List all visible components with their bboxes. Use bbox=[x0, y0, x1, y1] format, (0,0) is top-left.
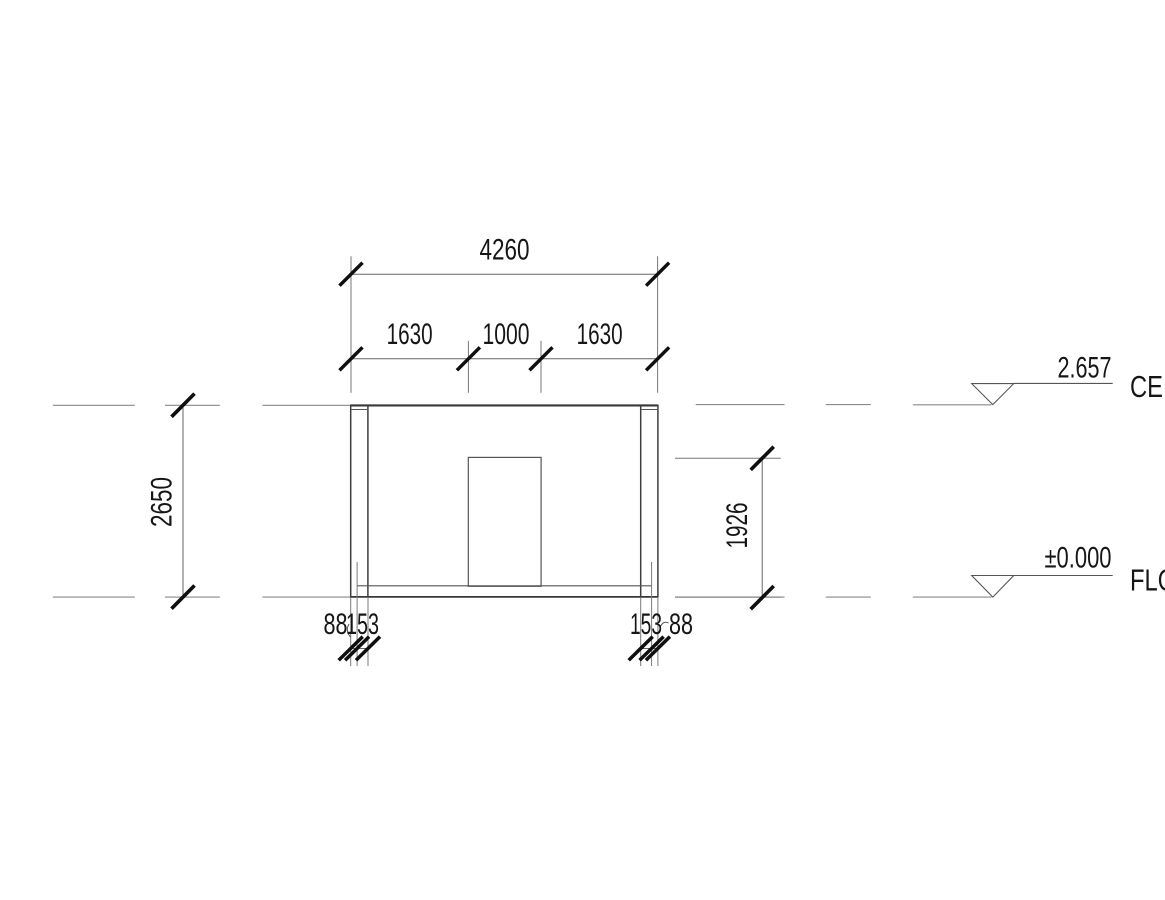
svg-text:1926: 1926 bbox=[721, 503, 754, 549]
svg-text:1000: 1000 bbox=[483, 318, 530, 351]
svg-text:88: 88 bbox=[324, 608, 348, 641]
svg-text:±0.000: ±0.000 bbox=[1045, 541, 1112, 574]
svg-text:2650: 2650 bbox=[146, 477, 179, 527]
svg-text:FLOOR: FLOOR bbox=[1130, 563, 1165, 598]
svg-text:1630: 1630 bbox=[577, 318, 623, 351]
svg-text:88: 88 bbox=[669, 608, 693, 641]
svg-text:CEILING: CEILING bbox=[1130, 369, 1165, 404]
svg-text:1630: 1630 bbox=[387, 318, 433, 351]
svg-text:153: 153 bbox=[346, 608, 379, 641]
svg-text:153: 153 bbox=[630, 608, 662, 641]
svg-text:4260: 4260 bbox=[480, 234, 530, 267]
svg-text:2.657: 2.657 bbox=[1058, 351, 1112, 384]
